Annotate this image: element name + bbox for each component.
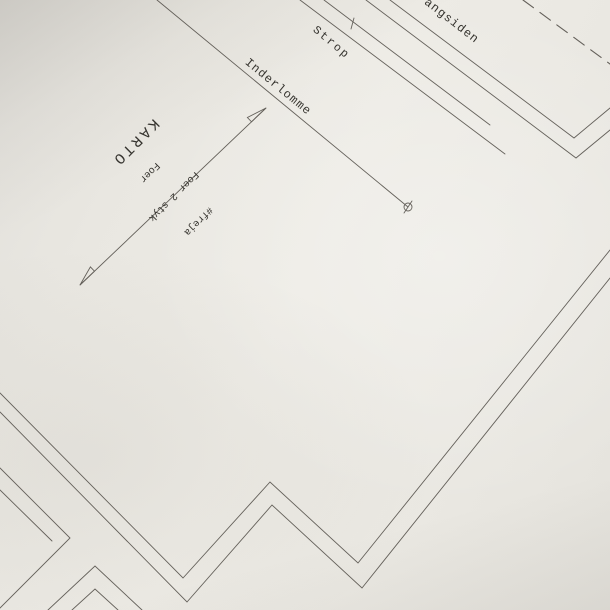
chevron-inner [72, 589, 118, 610]
grainline-arrowhead-bottom [80, 267, 95, 285]
pattern-lines-svg [0, 0, 610, 610]
chevron-outer [48, 566, 142, 610]
main-piece-edge-inner [0, 278, 610, 602]
corner-piece-inner-segment [0, 490, 52, 541]
sewing-pattern-photo: vrangsiden Strop Inderlomme KARTO #freja… [0, 0, 610, 610]
grainline-hashtag-line: #freja [170, 193, 225, 248]
vrangsiden-fold-dashed-line [523, 0, 610, 64]
grainline-arrowhead-top [247, 108, 266, 122]
grainline-lining-line: Foer [121, 144, 176, 199]
strap-notch-tick [351, 18, 354, 29]
vrangsiden-edge-inner [366, 0, 610, 158]
strap-edge-line-2 [324, 0, 490, 125]
grainline-pieces-line: Foer 2 styk [146, 169, 201, 224]
strap-edge-line-1 [300, 0, 505, 154]
vrangsiden-edge-outer [390, 0, 610, 138]
main-piece-edge-outer [0, 250, 610, 578]
corner-piece-edge [0, 468, 70, 608]
